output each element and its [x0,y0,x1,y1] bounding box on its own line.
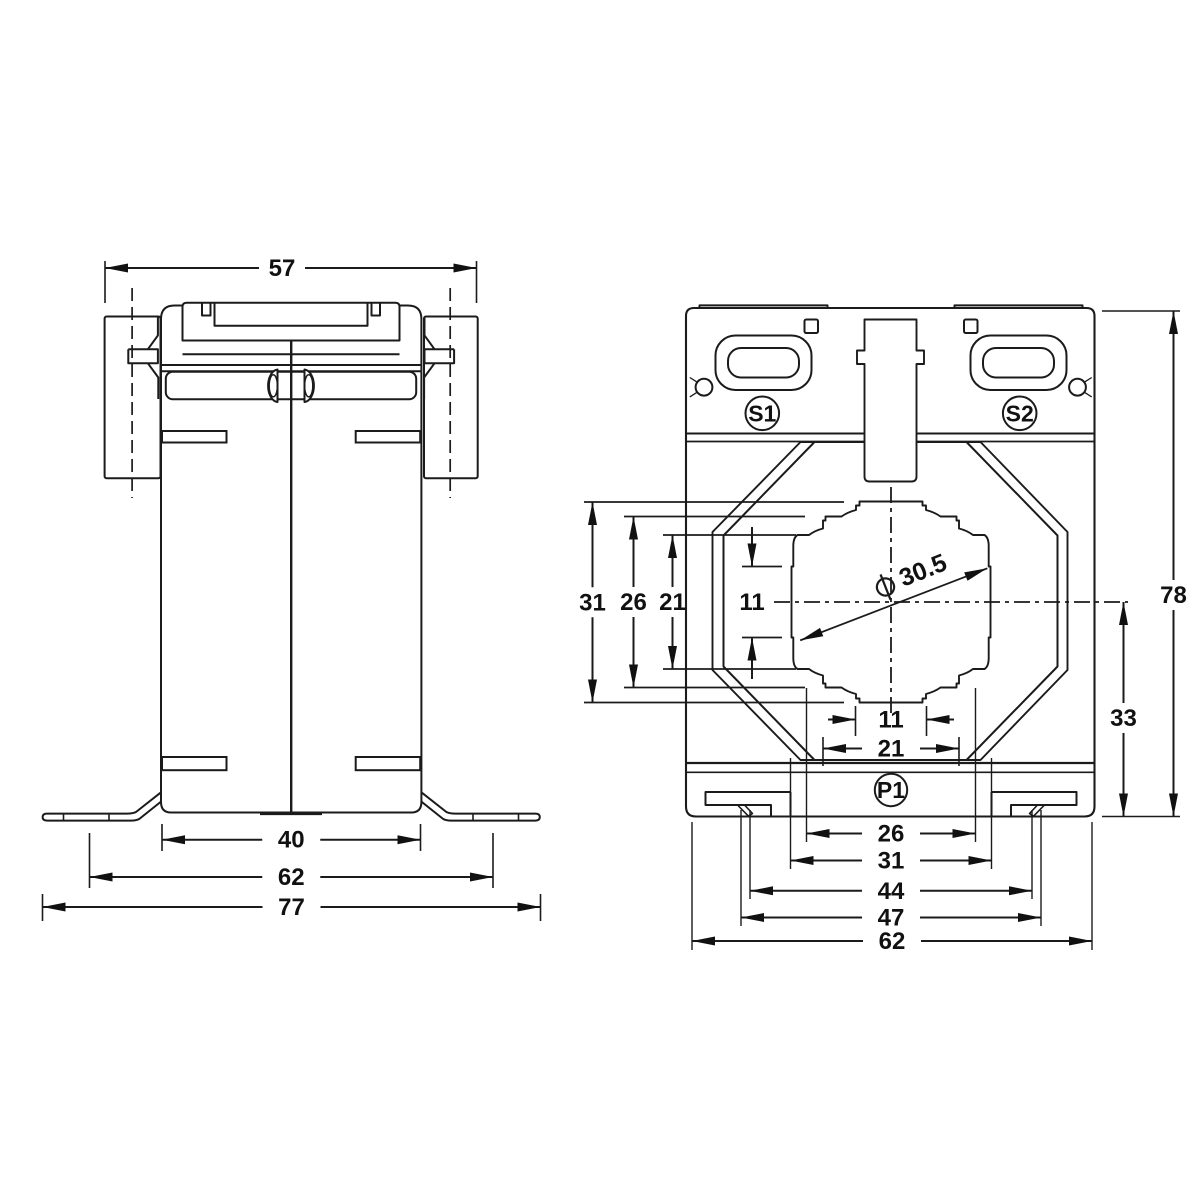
svg-text:26: 26 [878,821,905,848]
svg-text:11: 11 [878,707,903,734]
svg-text:78: 78 [1160,582,1187,609]
svg-text:26: 26 [620,589,647,616]
svg-text:31: 31 [878,848,905,875]
svg-text:P1: P1 [877,777,905,803]
svg-text:21: 21 [878,736,905,763]
svg-text:40: 40 [278,827,305,854]
svg-text:31: 31 [579,589,606,616]
svg-text:33: 33 [1110,705,1137,732]
svg-text:57: 57 [269,255,296,282]
svg-text:21: 21 [659,589,686,616]
svg-text:44: 44 [878,878,905,905]
svg-text:77: 77 [278,894,305,921]
svg-text:62: 62 [278,864,305,891]
svg-text:S1: S1 [748,401,776,427]
svg-text:62: 62 [879,928,906,955]
svg-text:S2: S2 [1006,401,1034,427]
svg-text:11: 11 [739,589,764,616]
